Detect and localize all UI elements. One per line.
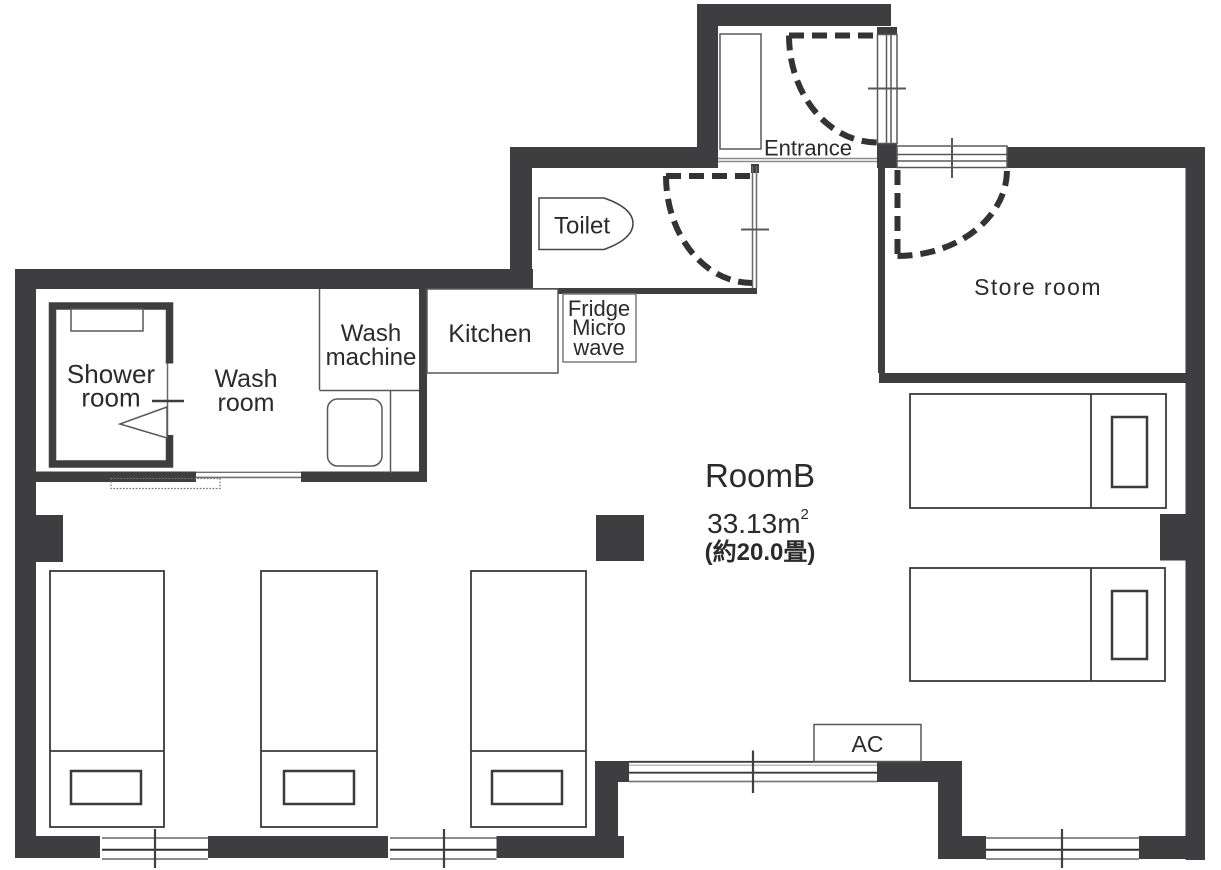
svg-text:Entrance: Entrance: [764, 136, 852, 161]
svg-text:machine: machine: [326, 344, 417, 371]
svg-text:RoomB: RoomB: [705, 457, 815, 494]
svg-text:Wash: Wash: [341, 320, 401, 347]
svg-text:Kitchen: Kitchen: [448, 320, 531, 348]
svg-text:Store room: Store room: [974, 274, 1102, 300]
svg-text:(約20.0畳): (約20.0畳): [705, 538, 816, 566]
svg-text:room: room: [218, 389, 275, 417]
svg-text:33.13m2: 33.13m2: [707, 506, 809, 539]
svg-text:wave: wave: [572, 335, 624, 360]
svg-text:Toilet: Toilet: [554, 213, 610, 240]
svg-text:AC: AC: [852, 731, 884, 757]
svg-text:room: room: [81, 383, 140, 413]
